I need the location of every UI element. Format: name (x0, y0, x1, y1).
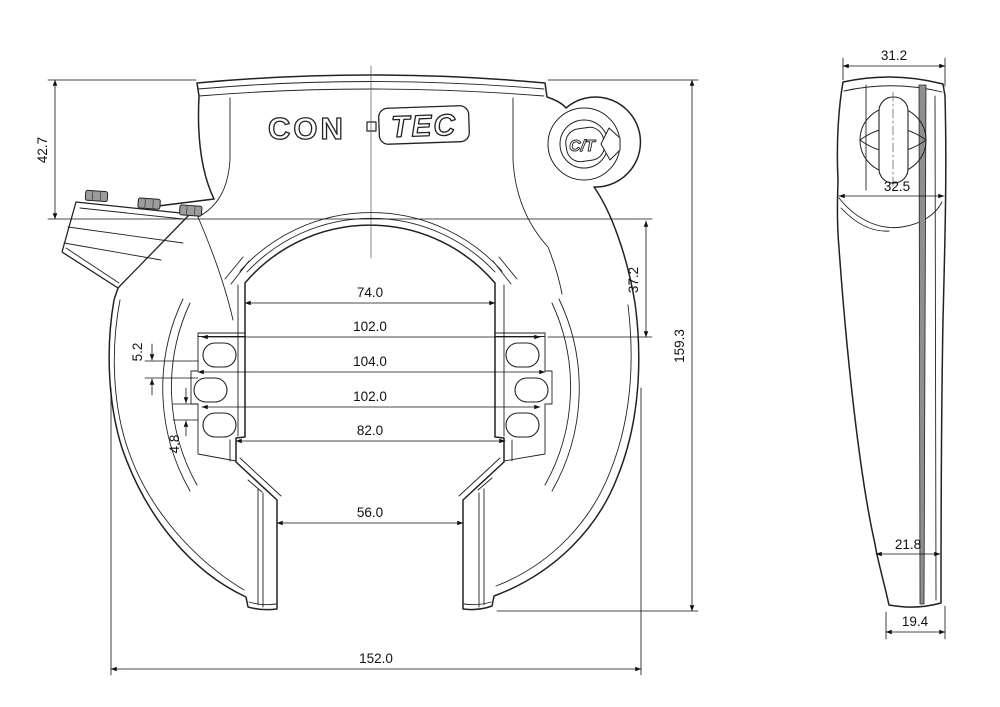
logo-dot (367, 122, 376, 131)
slot (203, 413, 236, 437)
lock-body-outline (109, 75, 640, 610)
dim-step-upper: 5.2 (130, 343, 145, 362)
slot (194, 378, 227, 402)
dim-height-to-lever: 42.7 (35, 137, 50, 163)
dim-step-lower: 4.8 (167, 435, 182, 454)
slot (203, 343, 236, 367)
dim-overall-height: 159.3 (672, 329, 687, 363)
side-view: 31.2 32.5 21.8 19.4 (837, 48, 945, 639)
dim-slot-span-lower: 102.0 (353, 389, 387, 404)
medallion-logo: C/T (569, 138, 596, 155)
dim-head-width: 32.5 (884, 179, 910, 194)
front-view: C/T CON TEC (35, 66, 698, 675)
dim-lower-inner-width: 82.0 (357, 423, 383, 438)
slot (515, 378, 548, 402)
dim-top-width: 31.2 (881, 48, 907, 63)
dim-pocket-span: 104.0 (353, 354, 387, 369)
slot (506, 413, 539, 437)
dim-leg-gap: 56.0 (357, 505, 383, 520)
dim-overall-width: 152.0 (359, 651, 393, 666)
dim-foot-width: 19.4 (902, 614, 929, 629)
dim-inner-top-width: 74.0 (357, 285, 383, 300)
dim-body-width: 21.8 (895, 537, 921, 552)
logo-con: CON (268, 111, 346, 146)
drawing-canvas: C/T CON TEC (0, 0, 1000, 707)
dim-inner-depth: 37.2 (626, 267, 641, 293)
dim-slot-span-upper: 102.0 (353, 319, 387, 334)
technical-drawing: C/T CON TEC (0, 0, 1000, 707)
logo-tec: TEC (390, 109, 457, 144)
slot (506, 343, 539, 367)
